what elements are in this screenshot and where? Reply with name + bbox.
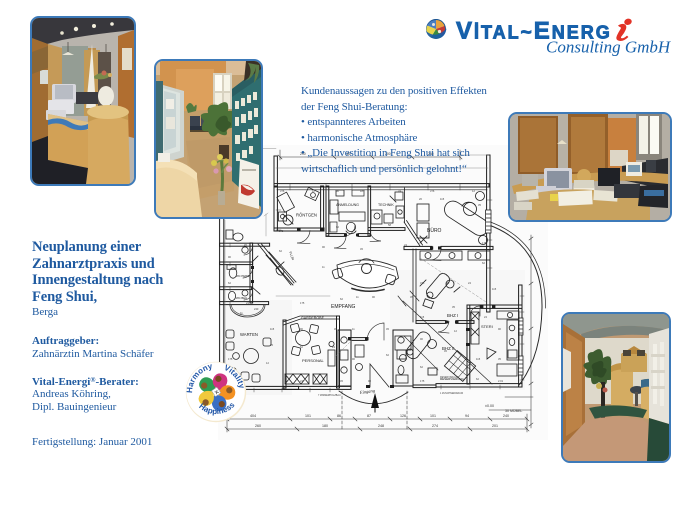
- svg-text:BHZ I: BHZ I: [447, 313, 458, 318]
- svg-text:240: 240: [254, 307, 259, 311]
- svg-text:WC BEH.: WC BEH.: [236, 296, 248, 300]
- svg-text:STERI: STERI: [481, 324, 493, 329]
- svg-text:274: 274: [432, 424, 438, 428]
- svg-text:±0.00: ±0.00: [485, 404, 494, 408]
- svg-text:Consulting GmbH: Consulting GmbH: [546, 38, 672, 57]
- svg-text:PERSONAL: PERSONAL: [302, 358, 325, 363]
- svg-text:WARTEN: WARTEN: [240, 332, 258, 337]
- svg-text:175: 175: [420, 379, 425, 383]
- svg-text:94: 94: [465, 414, 469, 418]
- svg-text:101: 101: [430, 414, 436, 418]
- svg-text:376: 376: [420, 281, 425, 285]
- svg-text:175: 175: [300, 301, 305, 305]
- svg-text:7 ZIMMERHOLZBAU: 7 ZIMMERHOLZBAU: [318, 394, 341, 397]
- svg-text:115: 115: [492, 287, 497, 291]
- svg-text:BÜRO: BÜRO: [427, 227, 442, 234]
- svg-text:EMPFANG: EMPFANG: [331, 304, 356, 310]
- svg-text:376: 376: [280, 189, 285, 193]
- svg-text:240: 240: [503, 414, 509, 418]
- svg-text:1 ZUSCHNEIDRAUM: 1 ZUSCHNEIDRAUM: [440, 392, 463, 395]
- svg-text:TECHNIK: TECHNIK: [378, 203, 394, 207]
- svg-text:ANMELDUNG: ANMELDUNG: [336, 203, 359, 207]
- svg-text:175: 175: [482, 241, 487, 245]
- svg-text:201: 201: [492, 424, 498, 428]
- svg-text:248: 248: [378, 424, 384, 428]
- svg-text:404: 404: [250, 414, 256, 418]
- svg-text:86: 86: [337, 414, 341, 418]
- svg-text:RESERVSRAUM: RESERVSRAUM: [440, 376, 458, 379]
- svg-text:87: 87: [367, 414, 371, 418]
- svg-text:101: 101: [305, 414, 311, 418]
- svg-text:30 MÜBEL: 30 MÜBEL: [505, 409, 522, 413]
- svg-text:376: 376: [430, 189, 435, 193]
- svg-text:115: 115: [420, 315, 425, 319]
- svg-text:WC PERS.: WC PERS.: [236, 274, 250, 278]
- svg-text:175: 175: [279, 229, 284, 233]
- svg-text:115: 115: [476, 357, 481, 361]
- svg-text:115: 115: [270, 327, 275, 331]
- svg-text:GARDEROBE: GARDEROBE: [301, 316, 325, 320]
- svg-text:115: 115: [440, 197, 445, 201]
- svg-text:180: 180: [322, 424, 328, 428]
- svg-text:260: 260: [255, 424, 261, 428]
- svg-text:2.01: 2.01: [498, 379, 504, 383]
- svg-text:126: 126: [400, 414, 406, 418]
- svg-text:RÖNTGEN: RÖNTGEN: [296, 213, 317, 218]
- svg-text:187: 187: [360, 189, 365, 193]
